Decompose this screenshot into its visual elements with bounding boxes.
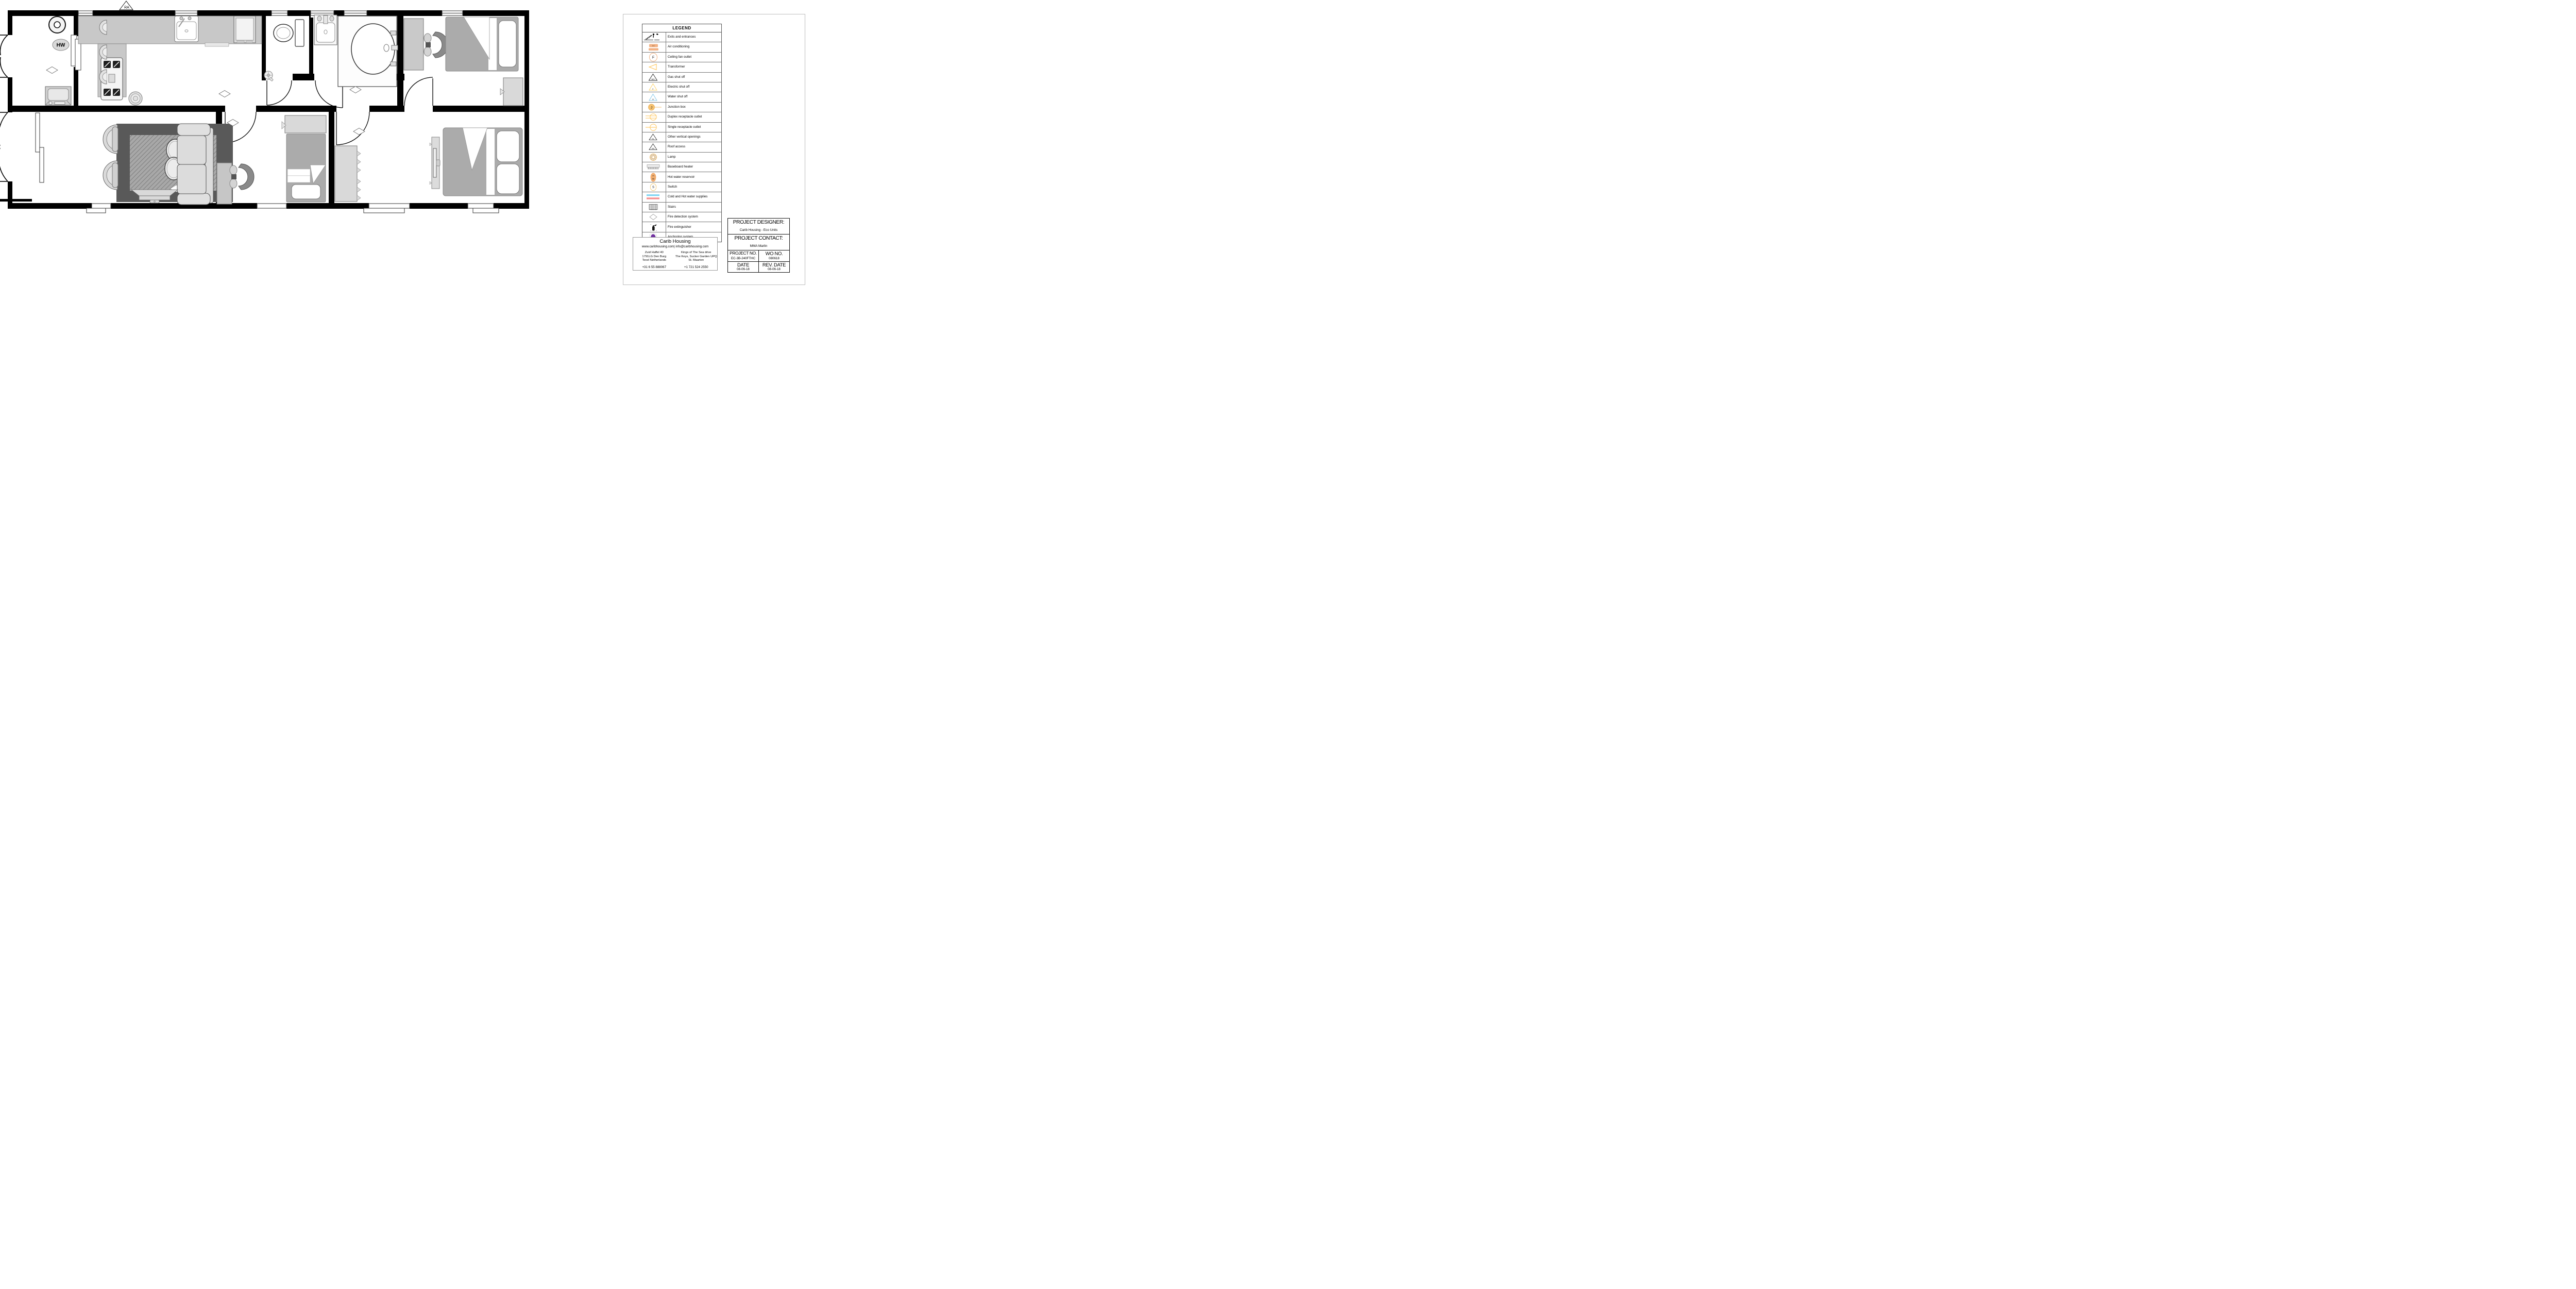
bedroom1-desk [404, 19, 423, 70]
bedroom1 [404, 17, 523, 106]
project-date-row: DATE 08-06-18 REV. DATE 08-06-18 [728, 262, 789, 272]
svg-text:AC: AC [652, 44, 655, 47]
legend-label: Hot water reservoir [666, 172, 721, 181]
legend-title: LEGEND [642, 24, 721, 32]
legend-label: Gas shut off [666, 73, 721, 82]
legend-row: Fire detection system [642, 212, 721, 222]
hot-water-reservoir-icon: HW [642, 172, 666, 181]
legend-label: Stairs [666, 203, 721, 212]
wall-toilet-bath [309, 16, 313, 74]
legend-label: Switch [666, 182, 721, 192]
legend-row: Transformer [642, 62, 721, 72]
legend-label: Cold and Hot water supplies [666, 192, 721, 202]
other-vertical-openings-icon: SL [642, 132, 666, 142]
floor-plan-canvas: HW [0, 0, 808, 292]
electric-shut-off-icon: E [642, 82, 666, 92]
project-contact-label: PROJECT CONTACT: [728, 235, 789, 242]
master-bedroom [335, 128, 522, 202]
legend-label: Single receptacle outlet [666, 123, 721, 132]
bedroom2-chair [230, 164, 254, 190]
bathroom-sink [314, 15, 337, 45]
bedroom2 [217, 115, 326, 204]
pillow [497, 164, 519, 194]
company-phones: +31 6 55 888067 +1 721 524 2550 [633, 265, 717, 269]
armchair [103, 125, 118, 154]
legend-row: Lamp [642, 153, 721, 162]
legend-row: SLOther vertical openings [642, 132, 721, 142]
legend-row: JJunction box [642, 103, 721, 112]
cold-hot-water-icon [642, 192, 666, 202]
bedroom2-bed [286, 134, 326, 202]
master-tv-console [430, 137, 440, 189]
sofa [177, 124, 213, 205]
kitchen-sink [175, 16, 198, 42]
legend-label: Fire extinguisher [666, 222, 721, 231]
transformer-icon [642, 62, 666, 72]
svg-text:W: W [652, 177, 655, 180]
legend-label: Junction box [666, 103, 721, 112]
project-no-value: EC-3B-240FTHC [728, 257, 758, 260]
svg-text:J: J [651, 106, 652, 109]
dryer [45, 87, 71, 105]
wall-mid [8, 106, 529, 112]
project-info-block: PROJECT DESIGNER: Carib Housing - Eco Un… [727, 218, 790, 273]
legend-row: Single receptacle outlet [642, 123, 721, 132]
legend-row: NGGas shut off [642, 73, 721, 82]
legend-label: Exits and entrances [666, 32, 721, 42]
water-shut-off-icon: W [642, 92, 666, 102]
svg-text:RA: RA [652, 147, 655, 150]
bedroom1-bed [446, 17, 518, 71]
svg-text:F: F [652, 56, 654, 59]
wo-no-value: 080618 [759, 257, 789, 260]
wo-no-label: WO NO. [759, 251, 789, 256]
legend-row: HWHot water reservoir [642, 172, 721, 182]
pillow [292, 185, 320, 199]
svg-text:S: S [652, 186, 654, 189]
legend-label: Air conditioning [666, 42, 721, 52]
door-leaf [36, 113, 40, 152]
bedroom1-chair [424, 32, 448, 58]
svg-text:NG: NG [652, 78, 655, 80]
legend-row: Duplex receptacle outlet [642, 112, 721, 122]
roof-access-marker: RA [120, 1, 133, 10]
switch-icon: S [642, 182, 666, 192]
exits-entrances-icon [642, 32, 666, 42]
ceiling-fan-outlet-icon: F [642, 53, 666, 62]
legend-label: Transformer [666, 62, 721, 72]
legend-label: Fire detection system [666, 212, 721, 222]
baseboard-heater-icon [642, 162, 666, 172]
door-leaf [40, 147, 44, 182]
living-room [103, 124, 233, 205]
legend-row: WWater shut off [642, 92, 721, 102]
wall-bedroom2-master [329, 112, 334, 204]
company-phone-right: +1 721 524 2550 [675, 265, 718, 269]
company-address-left: Zuid Haffel 40 1791LG Den Burg Texel Net… [633, 251, 675, 263]
armchair [103, 161, 118, 190]
legend-label: Duplex receptacle outlet [666, 112, 721, 122]
legend-label: Water shut off [666, 92, 721, 102]
kitchen: RA [78, 1, 262, 105]
air-conditioning-icon: AC [642, 42, 666, 52]
wall-bath-bedroom1 [397, 16, 403, 112]
master-bed [443, 128, 522, 196]
hot-water-label: HW [57, 43, 65, 48]
bedroom2-dresser [282, 115, 326, 133]
legend: LEGEND Exits and entrances ACAir conditi… [642, 24, 722, 242]
svg-text:H: H [652, 174, 654, 177]
svg-text:SL: SL [652, 138, 655, 140]
date-value: 08-06-18 [728, 268, 758, 271]
legend-row: Baseboard heater [642, 162, 721, 172]
utility-room: HW [45, 16, 71, 105]
legend-row: RARoof access [642, 142, 721, 152]
toilet-room [264, 20, 304, 81]
wall-stoop-line [0, 199, 32, 202]
legend-label: Roof access [666, 142, 721, 152]
roof-access-label: RA [124, 6, 129, 10]
single-receptacle-icon [642, 123, 666, 132]
project-designer-label: PROJECT DESIGNER: [728, 219, 789, 227]
project-no-row: PROJECT NO. EC-3B-240FTHC WO NO. 080618 [728, 250, 789, 261]
legend-row: Stairs [642, 203, 721, 212]
rev-date-label: REV. DATE [759, 262, 789, 267]
company-address-right: Kings of The Sea drive The Keys, Sucker … [675, 251, 718, 263]
legend-label: Lamp [666, 153, 721, 162]
company-phone-left: +31 6 55 888067 [633, 265, 675, 269]
project-no-label: PROJECT NO. [728, 251, 758, 255]
legend-row: Exits and entrances [642, 32, 721, 42]
duplex-receptacle-icon [642, 112, 666, 122]
company-name: Carib Housing [633, 239, 717, 244]
legend-label: Baseboard heater [666, 162, 721, 172]
legend-row: FCeiling fan outlet [642, 53, 721, 62]
fire-detection-icon [642, 212, 666, 222]
master-wardrobe [335, 146, 361, 202]
fire-extinguisher-icon [642, 222, 666, 231]
company-addresses: Zuid Haffel 40 1791LG Den Burg Texel Net… [633, 251, 717, 263]
date-label: DATE [728, 262, 758, 267]
fridge [234, 16, 256, 43]
toilet-tank [295, 20, 304, 46]
roof-access-icon: RA [642, 142, 666, 152]
company-contact-line: www.caribhousing.com| info@caribhousing.… [633, 245, 717, 248]
legend-row: Cold and Hot water supplies [642, 192, 721, 202]
legend-row: Fire extinguisher [642, 222, 721, 232]
stairs-icon [642, 203, 666, 212]
pillow [499, 21, 516, 67]
wall-kitchen-toilet [262, 16, 266, 74]
gas-shut-off-icon: NG [642, 73, 666, 82]
junction-box-icon: J [642, 103, 666, 112]
legend-row: SSwitch [642, 182, 721, 192]
svg-text:W: W [652, 98, 654, 101]
legend-row: EElectric shut off [642, 82, 721, 92]
project-contact-value: MMA Marlin [728, 243, 789, 250]
company-info-block: Carib Housing www.caribhousing.com| info… [633, 237, 718, 271]
legend-label: Other vertical openings [666, 132, 721, 142]
project-designer-value: Carib Housing - Eco Units [728, 227, 789, 235]
rev-date-value: 08-06-18 [759, 268, 789, 271]
legend-label: Ceiling fan outlet [666, 53, 721, 62]
legend-row: ACAir conditioning [642, 42, 721, 52]
svg-text:E: E [652, 88, 654, 90]
legend-label: Electric shut off [666, 82, 721, 92]
bathtub [338, 16, 398, 87]
lamp-icon [642, 153, 666, 162]
pillow [497, 131, 519, 162]
dishwasher [205, 43, 229, 46]
bedroom1-wardrobe [500, 78, 523, 106]
